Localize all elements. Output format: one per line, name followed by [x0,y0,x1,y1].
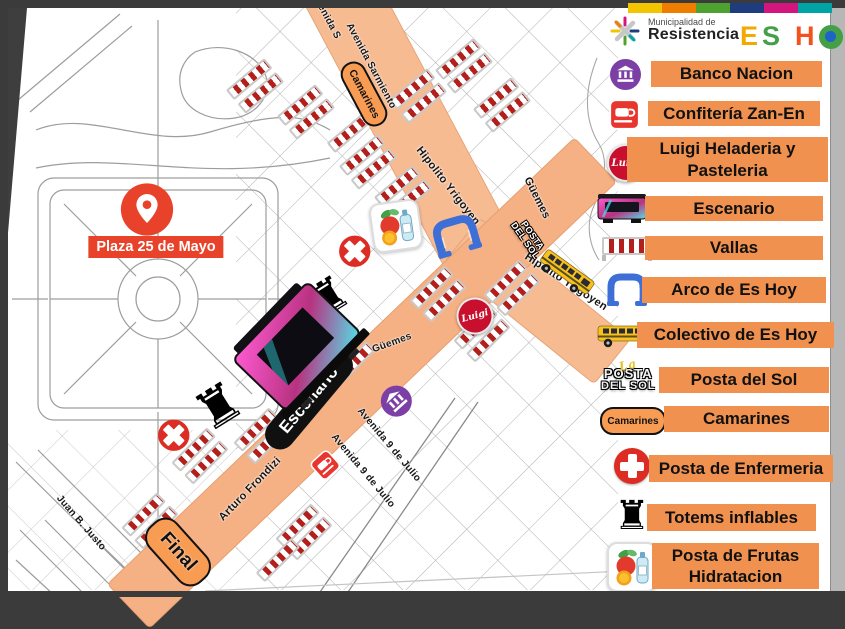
page-corner-shadow [8,8,27,233]
municipality-name: Resistencia [648,27,739,44]
legend-confiteria: Confitería Zan-En [648,101,820,126]
legend-totems: Totems inflables [647,504,816,531]
legend-luigi: Luigi Heladeria y Pasteleria [627,137,828,182]
legend-label: Escenario [693,198,774,219]
brand-color-strip [628,3,832,13]
legend-label: Posta del Sol [691,369,798,390]
municipality-logo: Municipalidad de Resistencia [608,14,739,48]
legend-label: Posta de Frutas [672,545,800,566]
camarines-pill-icon: Camarines [600,407,666,435]
frame-bottom [0,591,845,597]
legend-label: Hidratacion [689,566,783,587]
legend-colectivo: Colectivo de Es Hoy [637,322,834,348]
legend-escenario: Escenario [645,196,823,221]
legend-label: Pasteleria [687,160,767,181]
legend-arco: Arco de Es Hoy [642,277,826,303]
fruits-icon [607,542,657,592]
fruits-hydration-marker [368,198,424,254]
logo-letter: E [740,21,759,52]
legend-label: Camarines [703,408,790,429]
legend-label: Posta de Enfermeria [659,458,823,479]
legend-frutas: Posta de Frutas Hidratacion [652,543,819,589]
municipality-pinwheel-icon [608,14,642,48]
legend-label: Confitería Zan-En [663,103,805,124]
legend-label: Banco Nacion [680,63,793,84]
plaza-pin-icon [118,181,176,244]
legend-label: Luigi Heladeria y [659,138,795,159]
plaza-25-de-mayo-label: Plaza 25 de Mayo [88,236,223,258]
medical-cross-icon [614,448,650,484]
frame-left [0,0,8,597]
legend-vallas: Vallas [645,236,823,260]
legend-banco-nacion: Banco Nacion [651,61,822,87]
legend-label: Vallas [710,237,758,258]
totem-icon: ♜ [614,496,650,536]
event-map-page: { "header": { "strip_colors": ["#F2C500"… [0,0,845,597]
posta-del-sol-line2: DEL SOL [601,381,655,391]
legend-label: Colectivo de Es Hoy [654,324,817,345]
bank-icon [610,59,641,90]
logo-letter-o [819,25,843,49]
es-hoy-logo: E S H Y [740,21,845,52]
legend-label: Totems inflables [665,507,798,528]
coffee-cup-icon [609,99,640,135]
legend-label: Arco de Es Hoy [671,279,797,300]
legend-posta-del-sol: Posta del Sol [659,367,829,393]
posta-del-sol-logo: La POSTA DEL SOL [601,360,655,391]
logo-letter: S [762,21,781,52]
stage-truck-icon [595,191,649,230]
logo-letter: H [795,21,816,52]
legend-camarines: Camarines [664,406,829,432]
legend-enfermeria: Posta de Enfermeria [649,455,833,482]
